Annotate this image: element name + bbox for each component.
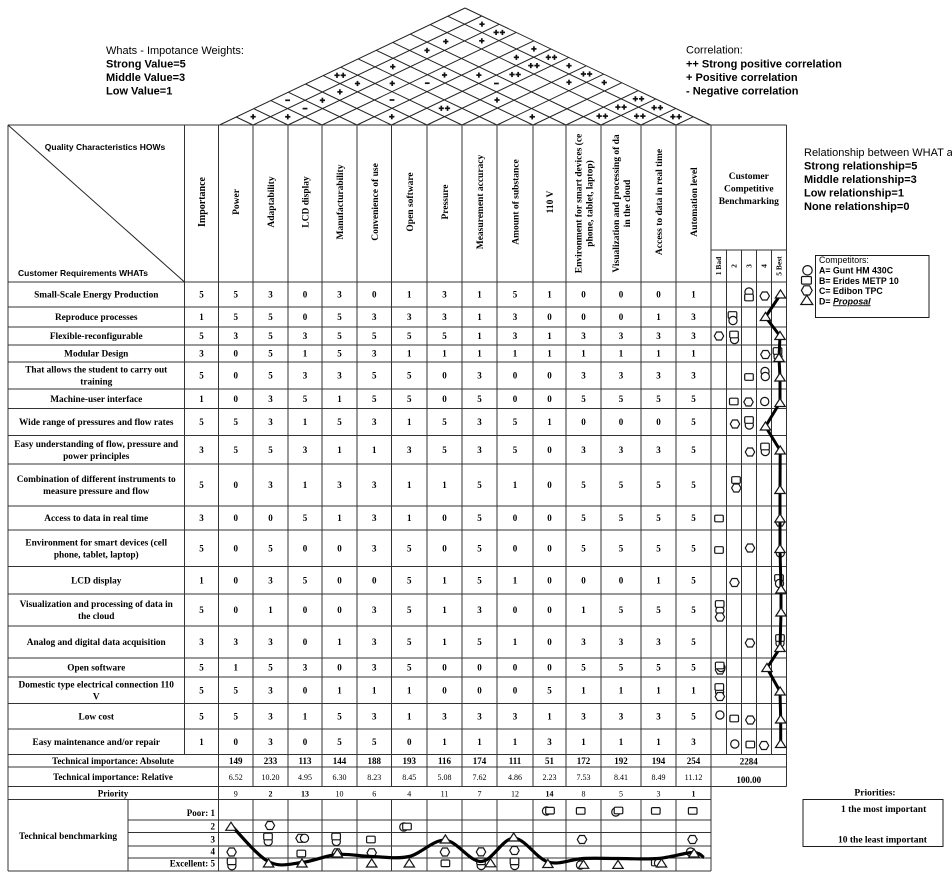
svg-text:1: 1 [199, 737, 204, 747]
svg-text:3: 3 [581, 371, 586, 381]
svg-text:5: 5 [234, 417, 239, 427]
svg-text:Adaptability: Adaptability [267, 176, 277, 227]
svg-text:3: 3 [442, 290, 447, 300]
svg-text:0: 0 [372, 576, 377, 586]
svg-text:0: 0 [442, 394, 447, 404]
svg-text:1: 1 [547, 290, 552, 300]
svg-text:0: 0 [581, 576, 586, 586]
svg-text:+ Positive correlation: + Positive correlation [686, 72, 798, 84]
svg-text:3: 3 [372, 544, 377, 554]
svg-text:0: 0 [547, 371, 552, 381]
svg-text:0: 0 [234, 371, 239, 381]
svg-text:3: 3 [372, 712, 377, 722]
svg-text:Technical importance: Relative: Technical importance: Relative [53, 772, 173, 782]
svg-text:1: 1 [407, 417, 412, 427]
svg-text:0: 0 [619, 576, 624, 586]
svg-text:5: 5 [337, 737, 342, 747]
svg-text:0: 0 [442, 513, 447, 523]
svg-text:3: 3 [656, 371, 661, 381]
svg-text:1: 1 [656, 686, 661, 696]
svg-text:3: 3 [442, 312, 447, 322]
svg-text:5: 5 [656, 544, 661, 554]
svg-text:100.00: 100.00 [736, 775, 761, 785]
svg-text:0: 0 [268, 513, 273, 523]
svg-text:Correlation:: Correlation: [686, 45, 743, 57]
svg-text:5: 5 [234, 445, 239, 455]
svg-text:3: 3 [337, 290, 342, 300]
svg-text:1: 1 [199, 576, 204, 586]
svg-text:3: 3 [268, 480, 273, 490]
svg-text:3: 3 [656, 331, 661, 341]
svg-text:0: 0 [547, 637, 552, 647]
svg-text:4: 4 [407, 790, 411, 799]
svg-text:5: 5 [268, 544, 273, 554]
svg-text:5: 5 [477, 637, 482, 647]
svg-text:5: 5 [619, 544, 624, 554]
svg-text:0: 0 [234, 513, 239, 523]
svg-text:1: 1 [477, 290, 482, 300]
svg-text:1: 1 [691, 349, 696, 359]
svg-text:3: 3 [268, 290, 273, 300]
svg-text:1: 1 [581, 686, 586, 696]
svg-text:1: 1 [547, 712, 552, 722]
svg-text:1: 1 [513, 349, 518, 359]
svg-text:Middle relationship=3: Middle relationship=3 [804, 174, 917, 186]
svg-text:3: 3 [477, 712, 482, 722]
svg-text:measure pressure and flow: measure pressure and flow [43, 487, 149, 497]
svg-text:5: 5 [581, 480, 586, 490]
svg-text:5: 5 [442, 417, 447, 427]
svg-text:116: 116 [438, 756, 452, 766]
svg-text:10.20: 10.20 [262, 773, 280, 782]
svg-text:Relationship between WHAT and: Relationship between WHAT and HOWs: [804, 147, 952, 159]
svg-text:0: 0 [234, 480, 239, 490]
svg-text:5: 5 [303, 394, 308, 404]
svg-text:5: 5 [407, 605, 412, 615]
svg-text:3: 3 [619, 371, 624, 381]
svg-text:0: 0 [513, 663, 518, 673]
svg-text:Competitors:: Competitors: [819, 255, 869, 265]
svg-text:A= Gunt HM 430C: A= Gunt HM 430C [819, 266, 894, 276]
svg-text:3: 3 [303, 445, 308, 455]
svg-text:5: 5 [337, 712, 342, 722]
svg-text:5: 5 [547, 686, 552, 696]
svg-text:3: 3 [372, 312, 377, 322]
svg-text:1: 1 [337, 445, 342, 455]
svg-text:0: 0 [547, 480, 552, 490]
svg-text:Convenience of use: Convenience of use [371, 163, 381, 241]
svg-text:2: 2 [730, 264, 739, 268]
svg-text:8.45: 8.45 [402, 773, 416, 782]
svg-text:0: 0 [581, 417, 586, 427]
svg-text:1: 1 [442, 576, 447, 586]
svg-text:LCD display: LCD display [71, 577, 122, 587]
svg-text:5: 5 [619, 480, 624, 490]
svg-text:5: 5 [199, 686, 204, 696]
svg-text:Low Value=1: Low Value=1 [106, 86, 172, 98]
svg-text:3: 3 [268, 394, 273, 404]
svg-text:1: 1 [656, 349, 661, 359]
svg-text:3: 3 [372, 417, 377, 427]
svg-text:Easy maintenance and/or repair: Easy maintenance and/or repair [33, 738, 161, 748]
svg-text:1: 1 [234, 663, 239, 673]
svg-text:5: 5 [691, 480, 696, 490]
svg-text:3: 3 [691, 737, 696, 747]
svg-text:3: 3 [337, 480, 342, 490]
svg-text:0: 0 [547, 663, 552, 673]
svg-text:Strong Value=5: Strong Value=5 [106, 59, 186, 71]
svg-text:5: 5 [691, 663, 696, 673]
svg-text:1: 1 [477, 349, 482, 359]
svg-text:3: 3 [691, 331, 696, 341]
svg-text:5: 5 [268, 331, 273, 341]
svg-text:Excellent: 5: Excellent: 5 [170, 859, 216, 869]
svg-text:Low relationship=1: Low relationship=1 [804, 188, 904, 200]
svg-text:5: 5 [268, 349, 273, 359]
svg-text:1: 1 [581, 737, 586, 747]
svg-text:Middle Value=3: Middle Value=3 [106, 72, 185, 84]
svg-text:0: 0 [547, 445, 552, 455]
svg-text:5: 5 [691, 605, 696, 615]
svg-text:5: 5 [407, 663, 412, 673]
svg-text:3: 3 [619, 712, 624, 722]
svg-text:1: 1 [619, 686, 624, 696]
svg-text:0: 0 [442, 544, 447, 554]
svg-text:10: 10 [336, 790, 344, 799]
svg-text:Environment for smart devices: Environment for smart devices (cell [25, 538, 167, 549]
svg-text:3: 3 [442, 712, 447, 722]
svg-text:3: 3 [268, 686, 273, 696]
svg-text:5: 5 [199, 544, 204, 554]
svg-text:5: 5 [442, 331, 447, 341]
svg-text:Automation level: Automation level [690, 167, 700, 237]
svg-text:5: 5 [656, 605, 661, 615]
svg-text:3: 3 [513, 312, 518, 322]
svg-text:5: 5 [199, 371, 204, 381]
svg-text:Strong relationship=5: Strong relationship=5 [804, 161, 917, 173]
svg-text:5: 5 [268, 312, 273, 322]
svg-text:3: 3 [372, 349, 377, 359]
svg-text:1: 1 [199, 394, 204, 404]
svg-text:1: 1 [547, 331, 552, 341]
svg-text:0: 0 [234, 394, 239, 404]
svg-text:0: 0 [372, 290, 377, 300]
svg-text:7.53: 7.53 [577, 773, 591, 782]
svg-text:1: 1 [513, 576, 518, 586]
svg-text:D= Proposal: D= Proposal [819, 296, 871, 306]
svg-text:5: 5 [581, 513, 586, 523]
svg-text:0: 0 [477, 686, 482, 696]
svg-text:5: 5 [337, 417, 342, 427]
svg-text:1: 1 [303, 480, 308, 490]
svg-text:LCD display: LCD display [302, 176, 312, 228]
svg-text:0: 0 [303, 686, 308, 696]
svg-text:1: 1 [337, 637, 342, 647]
svg-text:5: 5 [407, 637, 412, 647]
svg-text:That allows the student to car: That allows the student to carry out [25, 366, 168, 376]
svg-text:1: 1 [477, 312, 482, 322]
svg-text:233: 233 [264, 756, 278, 766]
svg-text:3: 3 [268, 712, 273, 722]
svg-text:0: 0 [513, 513, 518, 523]
svg-text:3: 3 [268, 576, 273, 586]
svg-text:5: 5 [619, 790, 623, 799]
svg-text:3: 3 [581, 637, 586, 647]
svg-text:1: 1 [337, 394, 342, 404]
svg-text:1: 1 [407, 349, 412, 359]
svg-text:1: 1 [581, 349, 586, 359]
svg-text:3: 3 [199, 445, 204, 455]
svg-text:5: 5 [656, 480, 661, 490]
svg-text:3: 3 [372, 637, 377, 647]
svg-text:5: 5 [691, 637, 696, 647]
svg-text:1: 1 [656, 312, 661, 322]
svg-text:1: 1 [442, 737, 447, 747]
svg-text:5: 5 [442, 445, 447, 455]
svg-text:110 V: 110 V [546, 190, 556, 213]
svg-text:0: 0 [547, 394, 552, 404]
svg-text:3: 3 [477, 417, 482, 427]
svg-text:5: 5 [656, 394, 661, 404]
svg-text:1 Bad: 1 Bad [714, 256, 723, 275]
svg-text:Priority: Priority [98, 789, 129, 799]
svg-text:13: 13 [301, 790, 309, 799]
svg-text:Open software: Open software [406, 172, 416, 231]
svg-text:0: 0 [513, 394, 518, 404]
svg-text:1 the most important: 1 the most important [841, 805, 927, 815]
svg-text:5: 5 [691, 417, 696, 427]
svg-text:3: 3 [268, 637, 273, 647]
svg-text:10 the least important: 10 the least important [838, 836, 928, 846]
svg-text:Domestic type electrical conne: Domestic type electrical connection 110 [19, 681, 175, 691]
svg-text:51: 51 [545, 756, 555, 766]
svg-text:1: 1 [442, 349, 447, 359]
svg-text:Customer Requirements WHATs: Customer Requirements WHATs [18, 268, 148, 278]
svg-text:Measurement accuracy: Measurement accuracy [476, 154, 486, 249]
svg-text:5 Best: 5 Best [775, 256, 784, 276]
svg-text:C= Edibon TPC: C= Edibon TPC [819, 286, 883, 296]
svg-text:1: 1 [692, 790, 696, 799]
svg-text:0: 0 [442, 686, 447, 696]
svg-text:7: 7 [478, 790, 482, 799]
svg-text:3: 3 [547, 737, 552, 747]
svg-text:Poor: 1: Poor: 1 [187, 808, 216, 818]
svg-text:3: 3 [691, 371, 696, 381]
svg-text:0: 0 [581, 290, 586, 300]
svg-text:5: 5 [199, 417, 204, 427]
svg-text:0: 0 [619, 312, 624, 322]
svg-text:1: 1 [513, 480, 518, 490]
svg-text:Easy understanding of flow, pr: Easy understanding of flow, pressure and [14, 440, 179, 450]
svg-text:Flexible-reconfigurable: Flexible-reconfigurable [50, 332, 143, 342]
svg-text:8.41: 8.41 [614, 773, 628, 782]
svg-text:1: 1 [513, 737, 518, 747]
svg-text:1: 1 [199, 312, 204, 322]
svg-text:5: 5 [372, 331, 377, 341]
svg-text:0: 0 [547, 605, 552, 615]
svg-text:0: 0 [234, 605, 239, 615]
svg-text:5: 5 [581, 544, 586, 554]
svg-text:the cloud: the cloud [78, 612, 115, 622]
svg-text:5: 5 [199, 663, 204, 673]
svg-text:5: 5 [199, 331, 204, 341]
svg-text:11.12: 11.12 [685, 773, 703, 782]
svg-text:0: 0 [656, 290, 661, 300]
svg-text:194: 194 [652, 756, 666, 766]
svg-text:1: 1 [303, 349, 308, 359]
svg-text:Amount of substance: Amount of substance [512, 159, 522, 245]
svg-text:3: 3 [581, 445, 586, 455]
svg-text:1: 1 [407, 686, 412, 696]
svg-text:power principles: power principles [63, 452, 130, 462]
svg-text:5: 5 [691, 544, 696, 554]
svg-text:5: 5 [303, 513, 308, 523]
svg-text:1: 1 [407, 513, 412, 523]
svg-text:5: 5 [619, 513, 624, 523]
svg-text:5: 5 [477, 394, 482, 404]
svg-text:0: 0 [303, 312, 308, 322]
svg-text:0: 0 [303, 544, 308, 554]
svg-text:Competitive: Competitive [724, 185, 774, 195]
svg-text:5: 5 [268, 663, 273, 673]
svg-text:Access to data in real time: Access to data in real time [655, 149, 665, 255]
svg-text:5: 5 [407, 371, 412, 381]
svg-text:5: 5 [407, 544, 412, 554]
svg-text:0: 0 [442, 371, 447, 381]
svg-text:5: 5 [303, 576, 308, 586]
svg-text:5: 5 [372, 371, 377, 381]
svg-text:3: 3 [619, 637, 624, 647]
svg-text:3: 3 [372, 480, 377, 490]
svg-text:1: 1 [407, 290, 412, 300]
svg-text:5: 5 [619, 605, 624, 615]
svg-text:5: 5 [407, 394, 412, 404]
svg-text:3: 3 [234, 637, 239, 647]
svg-text:1: 1 [372, 686, 377, 696]
svg-text:0: 0 [513, 605, 518, 615]
svg-text:5: 5 [199, 605, 204, 615]
svg-text:0: 0 [513, 686, 518, 696]
svg-text:3: 3 [303, 663, 308, 673]
svg-text:Machine-user interface: Machine-user interface [50, 395, 142, 405]
svg-text:Whats - Impotance Weights:: Whats - Impotance Weights: [106, 45, 244, 57]
svg-text:0: 0 [619, 290, 624, 300]
svg-text:0: 0 [303, 290, 308, 300]
svg-text:1: 1 [303, 712, 308, 722]
svg-text:1: 1 [372, 445, 377, 455]
svg-text:5: 5 [691, 445, 696, 455]
svg-text:Technical importance: Absolute: Technical importance: Absolute [52, 756, 174, 766]
svg-text:Priorities:: Priorities: [854, 789, 895, 799]
svg-text:1: 1 [513, 637, 518, 647]
svg-text:1: 1 [477, 737, 482, 747]
svg-text:1: 1 [407, 480, 412, 490]
svg-text:1: 1 [656, 576, 661, 586]
svg-text:3: 3 [745, 264, 754, 268]
svg-text:5: 5 [477, 576, 482, 586]
svg-text:5: 5 [619, 663, 624, 673]
svg-text:3: 3 [477, 445, 482, 455]
svg-text:0: 0 [234, 737, 239, 747]
svg-text:Access to data in real time: Access to data in real time [44, 514, 148, 524]
svg-text:3: 3 [619, 331, 624, 341]
svg-text:3: 3 [211, 835, 216, 845]
svg-text:14: 14 [546, 790, 554, 799]
svg-text:3: 3 [407, 312, 412, 322]
svg-text:1: 1 [691, 290, 696, 300]
svg-text:5: 5 [337, 349, 342, 359]
svg-text:0: 0 [303, 605, 308, 615]
svg-text:113: 113 [298, 756, 312, 766]
svg-text:Small-Scale Energy Production: Small-Scale Energy Production [34, 291, 159, 301]
svg-text:Pressure: Pressure [441, 184, 451, 219]
svg-text:- Negative correlation: - Negative correlation [686, 86, 799, 98]
svg-text:6: 6 [372, 790, 376, 799]
svg-text:8.49: 8.49 [652, 773, 666, 782]
svg-text:3: 3 [691, 312, 696, 322]
svg-text:Manufacturability: Manufacturability [336, 164, 346, 239]
svg-text:1: 1 [656, 737, 661, 747]
svg-text:5: 5 [337, 331, 342, 341]
svg-text:8.23: 8.23 [367, 773, 381, 782]
svg-text:1: 1 [407, 712, 412, 722]
svg-text:0: 0 [513, 544, 518, 554]
svg-text:172: 172 [577, 756, 591, 766]
svg-text:0: 0 [337, 663, 342, 673]
svg-text:3: 3 [268, 737, 273, 747]
svg-text:5: 5 [581, 394, 586, 404]
svg-text:5: 5 [691, 394, 696, 404]
svg-text:1: 1 [442, 637, 447, 647]
svg-text:5: 5 [656, 663, 661, 673]
svg-text:5: 5 [691, 513, 696, 523]
svg-text:5: 5 [199, 712, 204, 722]
svg-text:3: 3 [581, 331, 586, 341]
svg-text:5: 5 [691, 712, 696, 722]
svg-text:5: 5 [691, 576, 696, 586]
svg-text:3: 3 [477, 605, 482, 615]
svg-text:2284: 2284 [740, 757, 759, 767]
svg-text:3: 3 [513, 712, 518, 722]
svg-text:1: 1 [337, 686, 342, 696]
svg-text:0: 0 [234, 576, 239, 586]
svg-text:0: 0 [619, 417, 624, 427]
svg-text:5.08: 5.08 [438, 773, 452, 782]
svg-text:5: 5 [407, 331, 412, 341]
svg-text:3: 3 [372, 605, 377, 615]
svg-text:V: V [93, 693, 100, 703]
svg-text:training: training [80, 378, 112, 388]
svg-text:phone, tablet, laptop): phone, tablet, laptop) [54, 550, 139, 561]
svg-text:Visualization and processing o: Visualization and processing of da [612, 134, 622, 273]
svg-text:4.95: 4.95 [298, 773, 312, 782]
svg-text:0: 0 [337, 576, 342, 586]
svg-text:Modular Design: Modular Design [64, 350, 129, 360]
svg-text:5: 5 [372, 394, 377, 404]
svg-text:0: 0 [407, 737, 412, 747]
svg-text:B= Erides METP 10: B= Erides METP 10 [819, 276, 899, 286]
svg-text:5: 5 [268, 445, 273, 455]
svg-text:5: 5 [656, 513, 661, 523]
svg-text:6.52: 6.52 [229, 773, 243, 782]
svg-text:11: 11 [441, 790, 449, 799]
svg-text:3: 3 [372, 513, 377, 523]
svg-text:3: 3 [656, 712, 661, 722]
svg-text:7.62: 7.62 [473, 773, 487, 782]
svg-text:0: 0 [442, 663, 447, 673]
svg-text:5: 5 [337, 312, 342, 322]
svg-text:Reproduce processes: Reproduce processes [55, 313, 138, 323]
